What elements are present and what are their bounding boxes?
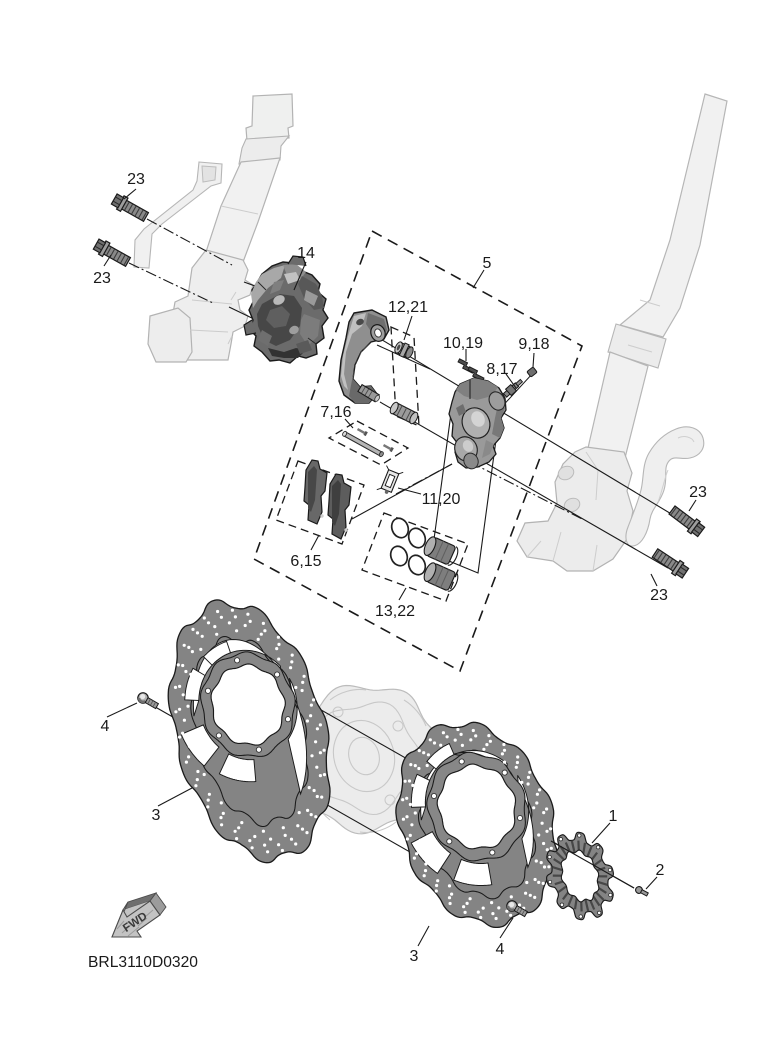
svg-text:23: 23: [93, 270, 111, 287]
svg-text:4: 4: [101, 718, 110, 735]
svg-text:13,22: 13,22: [375, 603, 415, 620]
svg-text:10,19: 10,19: [443, 335, 483, 352]
svg-text:5: 5: [483, 255, 492, 272]
svg-text:9,18: 9,18: [518, 336, 549, 353]
svg-text:1: 1: [609, 808, 618, 825]
svg-text:3: 3: [410, 948, 419, 965]
svg-text:4: 4: [496, 941, 505, 958]
svg-text:23: 23: [650, 587, 668, 604]
svg-text:14: 14: [297, 245, 315, 262]
svg-text:3: 3: [152, 807, 161, 824]
svg-text:6,15: 6,15: [290, 553, 321, 570]
svg-text:8,17: 8,17: [486, 361, 517, 378]
svg-text:7,16: 7,16: [320, 404, 351, 421]
svg-text:2: 2: [656, 862, 665, 879]
svg-text:23: 23: [689, 484, 707, 501]
svg-text:12,21: 12,21: [388, 299, 428, 316]
svg-text:23: 23: [127, 171, 145, 188]
svg-text:BRL3110D0320: BRL3110D0320: [88, 954, 198, 971]
svg-text:11,20: 11,20: [422, 491, 461, 508]
